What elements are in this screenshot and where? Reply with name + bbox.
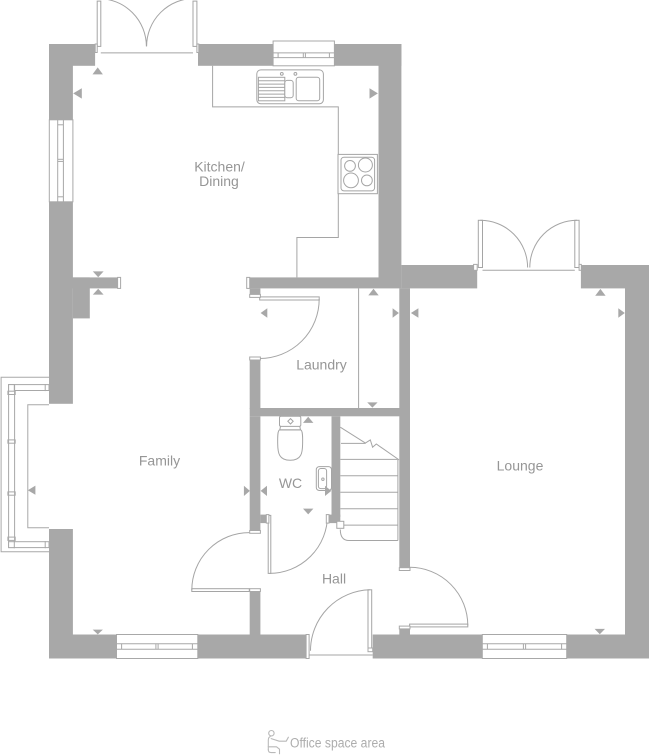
svg-text:Family: Family [139, 453, 180, 469]
svg-text:Lounge: Lounge [497, 458, 544, 474]
svg-text:Laundry: Laundry [296, 357, 347, 373]
svg-text:Office space area: Office space area [290, 735, 385, 750]
svg-text:Dining: Dining [199, 173, 239, 189]
svg-text:Hall: Hall [322, 571, 346, 587]
svg-text:WC: WC [279, 475, 302, 491]
